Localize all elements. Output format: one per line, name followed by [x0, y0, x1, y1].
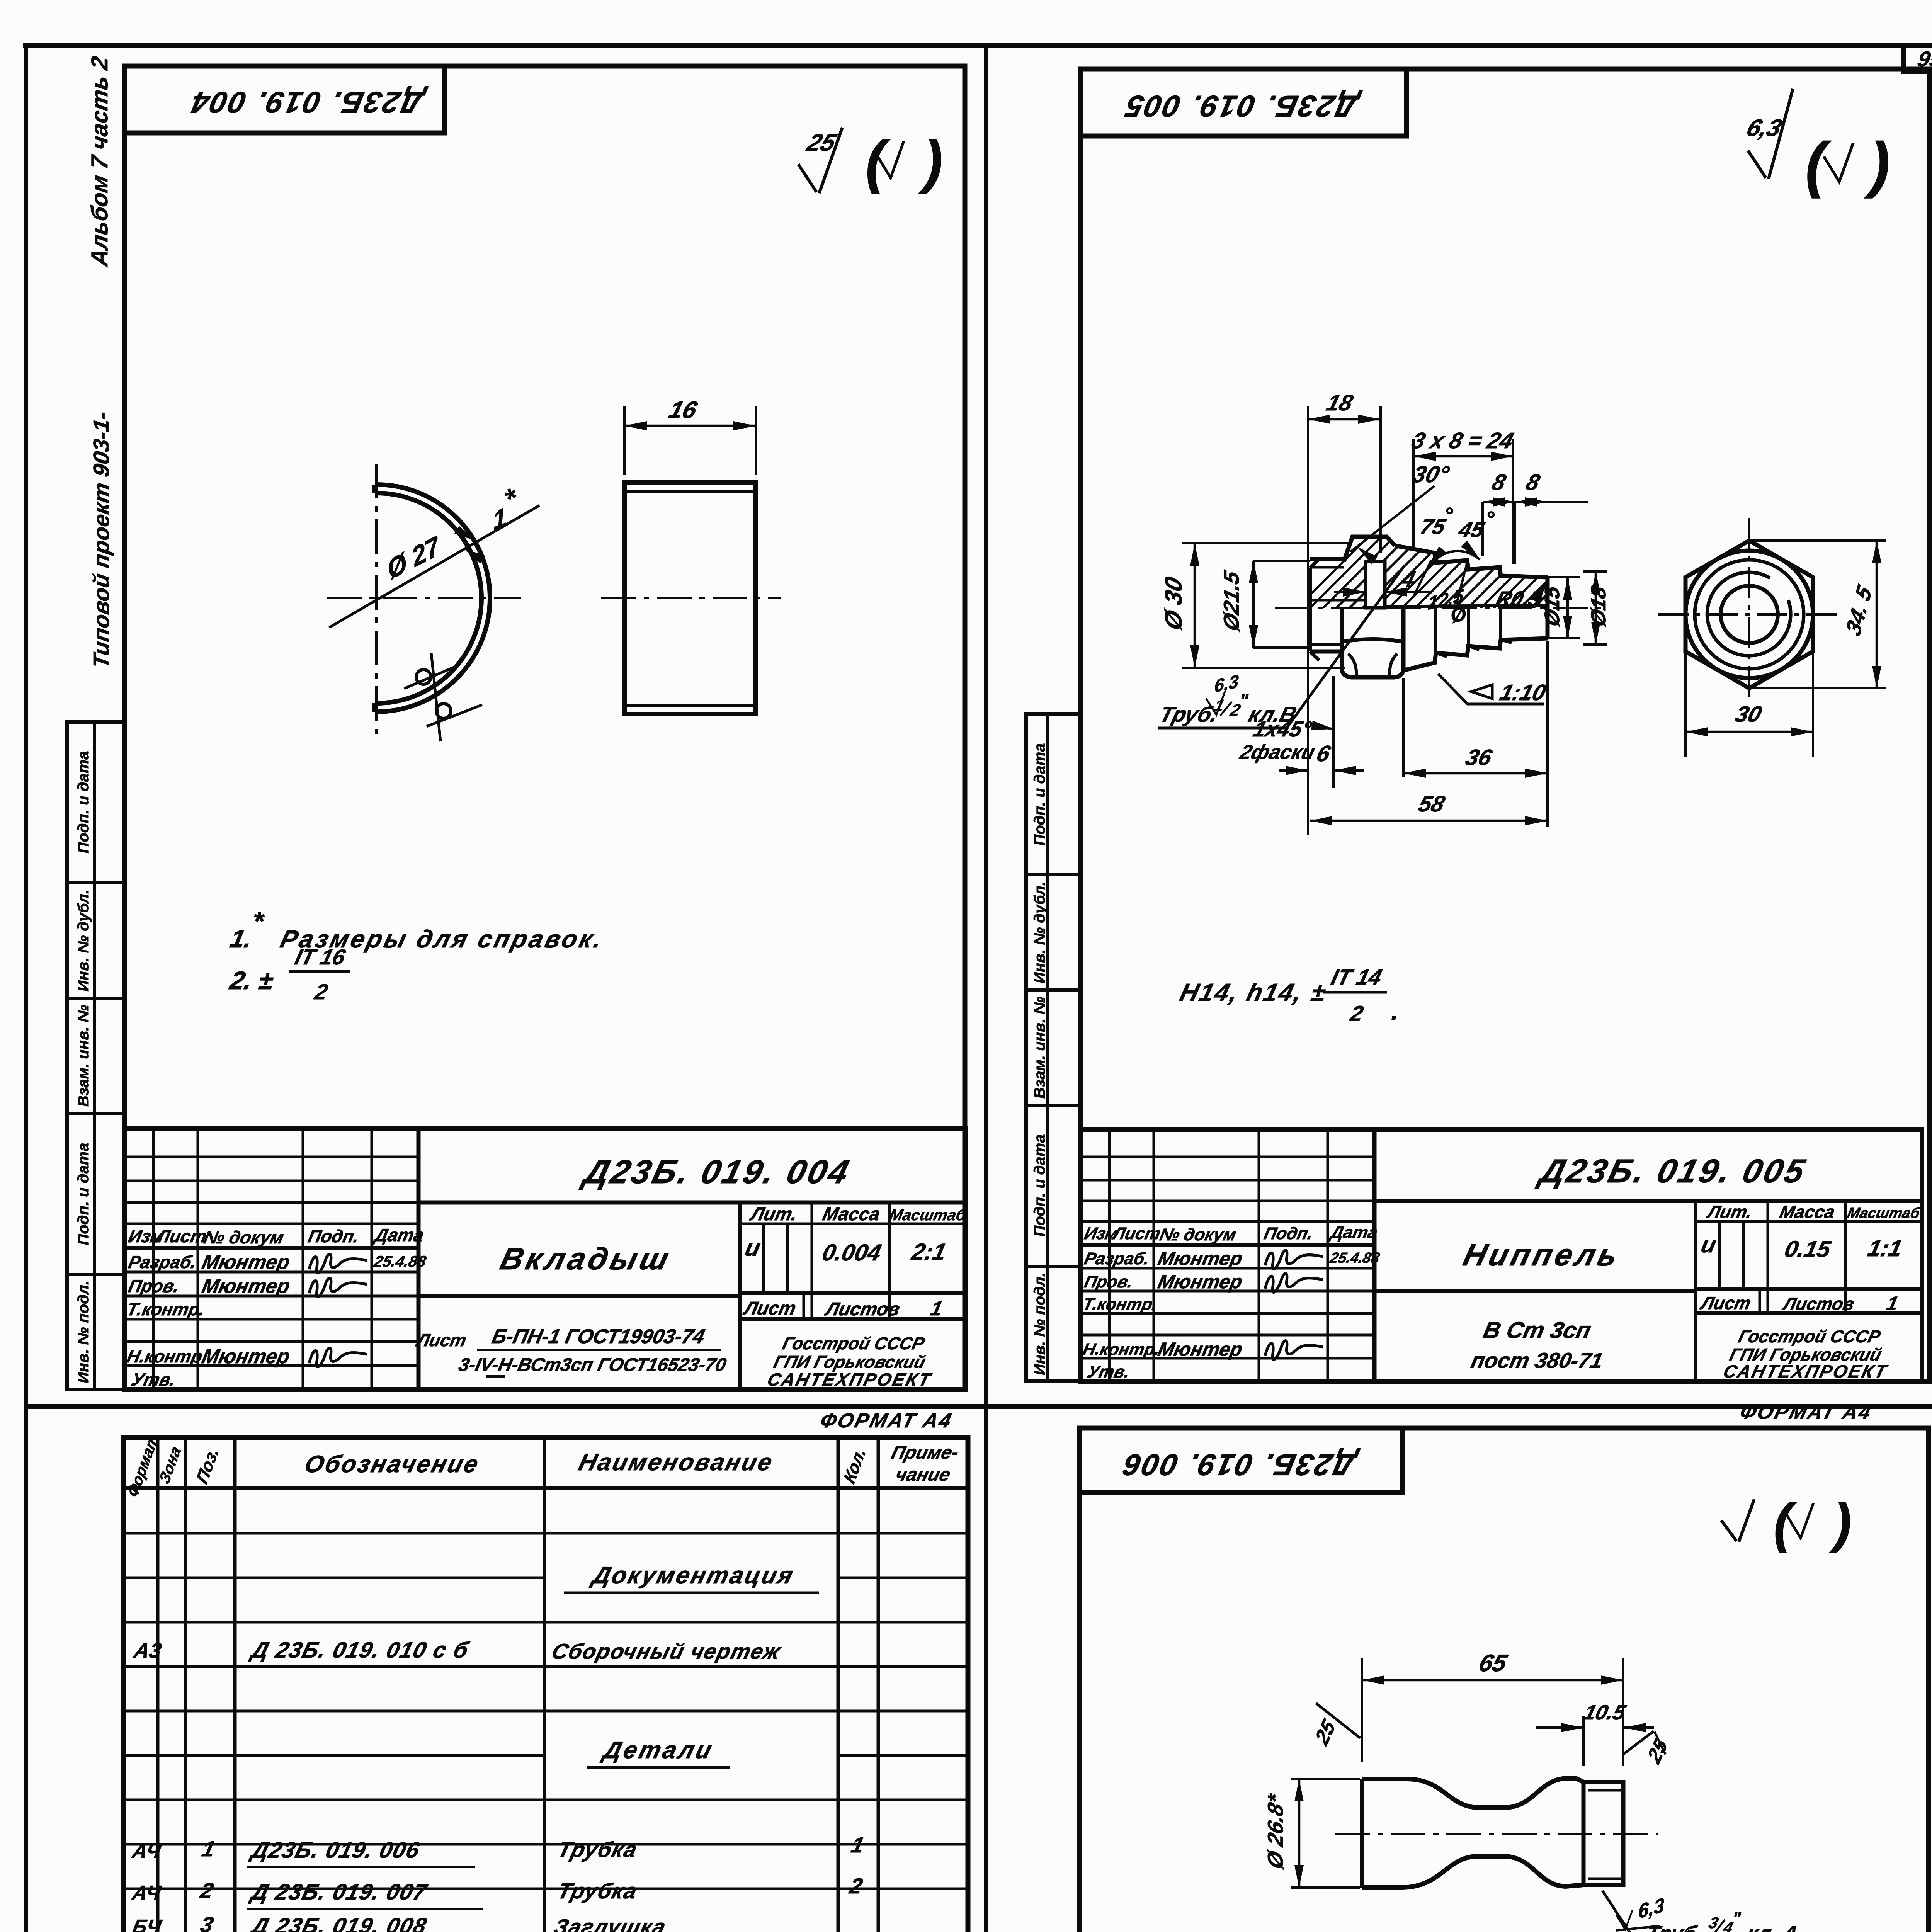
- svg-text:Дата: Дата: [1328, 1223, 1379, 1242]
- svg-text:Мюнтер: Мюнтер: [200, 1345, 292, 1368]
- svg-text:1: 1: [492, 502, 508, 536]
- svg-text:Листов: Листов: [1781, 1294, 1856, 1313]
- svg-text:2фаски: 2фаски: [1237, 741, 1317, 764]
- svg-text:Д23Б. 019. 005: Д23Б. 019. 005: [1121, 89, 1363, 123]
- svg-text:2:1: 2:1: [909, 1239, 949, 1265]
- svg-text:№ докум: № докум: [202, 1227, 286, 1247]
- svg-text:Пров.: Пров.: [127, 1276, 181, 1296]
- svg-text:Трубка: Трубка: [555, 1838, 640, 1862]
- svg-text:Б-ПН-1 ГОСТ19903-74: Б-ПН-1 ГОСТ19903-74: [490, 1325, 707, 1348]
- svg-text:Лит.: Лит.: [1705, 1202, 1754, 1221]
- svg-text:°: °: [1444, 503, 1453, 527]
- svg-text:Подп. и дата: Подп. и дата: [1031, 1134, 1048, 1237]
- svg-text:Д23Б. 019. 005: Д23Б. 019. 005: [1534, 1152, 1811, 1190]
- svg-text:АЧ: АЧ: [129, 1882, 163, 1904]
- svg-text:IT 14: IT 14: [1329, 966, 1384, 990]
- svg-text:ФОРМАТ А4: ФОРМАТ А4: [1738, 1401, 1874, 1423]
- svg-text:Инв. № подл.: Инв. № подл.: [1031, 1272, 1048, 1375]
- svg-text:Труб.: Труб.: [1643, 1922, 1705, 1932]
- svg-text:Лист: Лист: [742, 1298, 798, 1318]
- svg-text:Мюнтер: Мюнтер: [1156, 1271, 1245, 1293]
- svg-text:Заглушка: Заглушка: [551, 1915, 669, 1932]
- svg-text:Взам. инв. №: Взам. инв. №: [75, 1005, 92, 1107]
- svg-text:1:10: 1:10: [1497, 680, 1549, 705]
- svg-text:*: *: [253, 906, 265, 936]
- svg-text:Лист: Лист: [414, 1330, 468, 1350]
- svg-text:Лист: Лист: [155, 1226, 209, 1246]
- svg-text:Д 23Б. 019. 010 с б: Д 23Б. 019. 010 с б: [247, 1638, 472, 1663]
- svg-text:Т.контр.: Т.контр.: [125, 1299, 207, 1319]
- svg-text:Подп. и дата: Подп. и дата: [75, 751, 92, 854]
- svg-text:Ниппель: Ниппель: [1460, 1238, 1624, 1272]
- svg-text:Н.контр.: Н.контр.: [125, 1346, 209, 1366]
- svg-text:Приме-: Приме-: [889, 1442, 961, 1463]
- svg-text:": ": [1240, 691, 1249, 711]
- svg-text:Масса: Масса: [1778, 1202, 1837, 1221]
- svg-text:Инв. № подл.: Инв. № подл.: [75, 1281, 92, 1383]
- svg-text:3-IV-Н-ВСт3сп ГОСТ16523-70: 3-IV-Н-ВСт3сп ГОСТ16523-70: [457, 1354, 728, 1375]
- svg-text:0.004: 0.004: [820, 1240, 883, 1265]
- svg-text:Ø 30: Ø 30: [1160, 574, 1187, 633]
- svg-text:кл. А: кл. А: [1744, 1922, 1801, 1932]
- svg-text:Сборочный чертеж: Сборочный чертеж: [549, 1640, 784, 1664]
- svg-text:Трубка: Трубка: [555, 1879, 640, 1903]
- svg-text:10.5: 10.5: [1581, 1701, 1629, 1724]
- svg-text:30°: 30°: [1410, 461, 1452, 487]
- svg-text:Лит.: Лит.: [748, 1204, 799, 1224]
- svg-text:Госстрой СССР: Госстрой СССР: [781, 1334, 927, 1353]
- svg-text:А3: А3: [131, 1639, 163, 1662]
- svg-text:Детали: Детали: [599, 1737, 717, 1764]
- svg-text:Вкладыш: Вкладыш: [497, 1242, 675, 1276]
- svg-text:чание: чание: [893, 1464, 952, 1485]
- svg-text:Д23Б. 019. 006: Д23Б. 019. 006: [1119, 1448, 1361, 1481]
- svg-text:25.4.88: 25.4.88: [372, 1252, 428, 1270]
- svg-text:Мюнтер: Мюнтер: [1156, 1248, 1245, 1269]
- svg-text:Типовой проект 903-1-: Типовой проект 903-1-: [89, 410, 114, 670]
- svg-text:Мюнтер: Мюнтер: [200, 1251, 292, 1274]
- svg-text:Разраб.: Разраб.: [127, 1252, 199, 1272]
- svg-text:2. ±: 2. ±: [227, 967, 276, 995]
- svg-text:Наименование: Наименование: [576, 1449, 777, 1476]
- svg-text:№ докум: № докум: [1158, 1225, 1238, 1244]
- svg-text:Мюнтер: Мюнтер: [1156, 1338, 1245, 1360]
- svg-text:Инв. № дубл.: Инв. № дубл.: [1031, 881, 1048, 983]
- svg-text:Масштаб: Масштаб: [888, 1206, 968, 1223]
- svg-text:САНТЕХПРОЕКТ: САНТЕХПРОЕКТ: [1721, 1362, 1890, 1381]
- svg-text:пост 380-71: пост 380-71: [1469, 1349, 1605, 1372]
- svg-text:": ": [1733, 1908, 1742, 1928]
- svg-text:Д23Б. 019. 006: Д23Б. 019. 006: [247, 1838, 423, 1863]
- svg-text:Дата: Дата: [372, 1225, 426, 1245]
- svg-text:Д 23Б. 019. 007: Д 23Б. 019. 007: [247, 1880, 430, 1905]
- svg-text:Лист: Лист: [1111, 1224, 1162, 1243]
- svg-text:Госстрой СССР: Госстрой СССР: [1736, 1327, 1883, 1346]
- svg-text:ГПИ Горьковский: ГПИ Горьковский: [772, 1352, 928, 1372]
- svg-text:Альбом 7 часть 2: Альбом 7 часть 2: [86, 54, 112, 268]
- svg-text:Пров.: Пров.: [1083, 1272, 1134, 1291]
- svg-text:Т.контр.: Т.контр.: [1081, 1295, 1159, 1313]
- svg-text:Подп.: Подп.: [306, 1226, 361, 1246]
- svg-text:Ø18: Ø18: [1587, 583, 1610, 629]
- svg-text:3 x 8 = 24: 3 x 8 = 24: [1409, 428, 1516, 453]
- svg-text:Взам. инв. №: Взам. инв. №: [1031, 997, 1048, 1099]
- svg-text:Разраб.: Разраб.: [1083, 1249, 1151, 1268]
- svg-text:25.4.88: 25.4.88: [1328, 1250, 1381, 1266]
- svg-text:1:1: 1:1: [1866, 1235, 1905, 1261]
- svg-text:Лист: Лист: [1699, 1293, 1753, 1313]
- svg-text:Масса: Масса: [821, 1204, 882, 1224]
- svg-text:Д23Б. 019. 004: Д23Б. 019. 004: [187, 85, 429, 119]
- svg-text:Утв.: Утв.: [1086, 1362, 1131, 1381]
- svg-text:.: .: [1391, 998, 1398, 1026]
- svg-text:Н.контр.: Н.контр.: [1081, 1340, 1162, 1359]
- svg-text:Д23Б. 019. 004: Д23Б. 019. 004: [578, 1153, 855, 1190]
- svg-text:Масштаб: Масштаб: [1846, 1205, 1922, 1221]
- svg-text:ФОРМАТ А4: ФОРМАТ А4: [818, 1410, 955, 1432]
- svg-text:САНТЕХПРОЕКТ: САНТЕХПРОЕКТ: [765, 1370, 934, 1389]
- svg-text:Утв.: Утв.: [130, 1369, 178, 1389]
- svg-text:В Ст 3сп: В Ст 3сп: [1481, 1317, 1594, 1343]
- svg-text:Д 23Б. 019. 008: Д 23Б. 019. 008: [247, 1914, 430, 1932]
- svg-text:Мюнтер: Мюнтер: [200, 1275, 292, 1298]
- svg-text:°: °: [1486, 507, 1495, 531]
- svg-text:Н14, h14, ±: Н14, h14, ±: [1177, 978, 1330, 1006]
- svg-text:Инв. № дубл.: Инв. № дубл.: [75, 889, 92, 992]
- svg-text:Ø 26.8*: Ø 26.8*: [1264, 1791, 1288, 1871]
- svg-text:Подп. и дата: Подп. и дата: [1031, 743, 1048, 846]
- svg-text:Ø21.5: Ø21.5: [1220, 568, 1244, 633]
- svg-text:0.15: 0.15: [1782, 1236, 1833, 1262]
- svg-text:1x45°: 1x45°: [1251, 717, 1315, 742]
- svg-text:Обозначение: Обозначение: [302, 1451, 483, 1478]
- svg-text:IT 16: IT 16: [293, 946, 348, 969]
- svg-text:АЧ: АЧ: [129, 1840, 163, 1862]
- svg-text:Подп. и дата: Подп. и дата: [75, 1143, 92, 1245]
- svg-text:Документация: Документация: [588, 1562, 797, 1589]
- svg-text:Листов: Листов: [823, 1299, 902, 1319]
- svg-text:БЧ: БЧ: [130, 1916, 164, 1932]
- svg-text:Подп.: Подп.: [1262, 1224, 1315, 1243]
- svg-text:Ø15: Ø15: [1540, 583, 1564, 629]
